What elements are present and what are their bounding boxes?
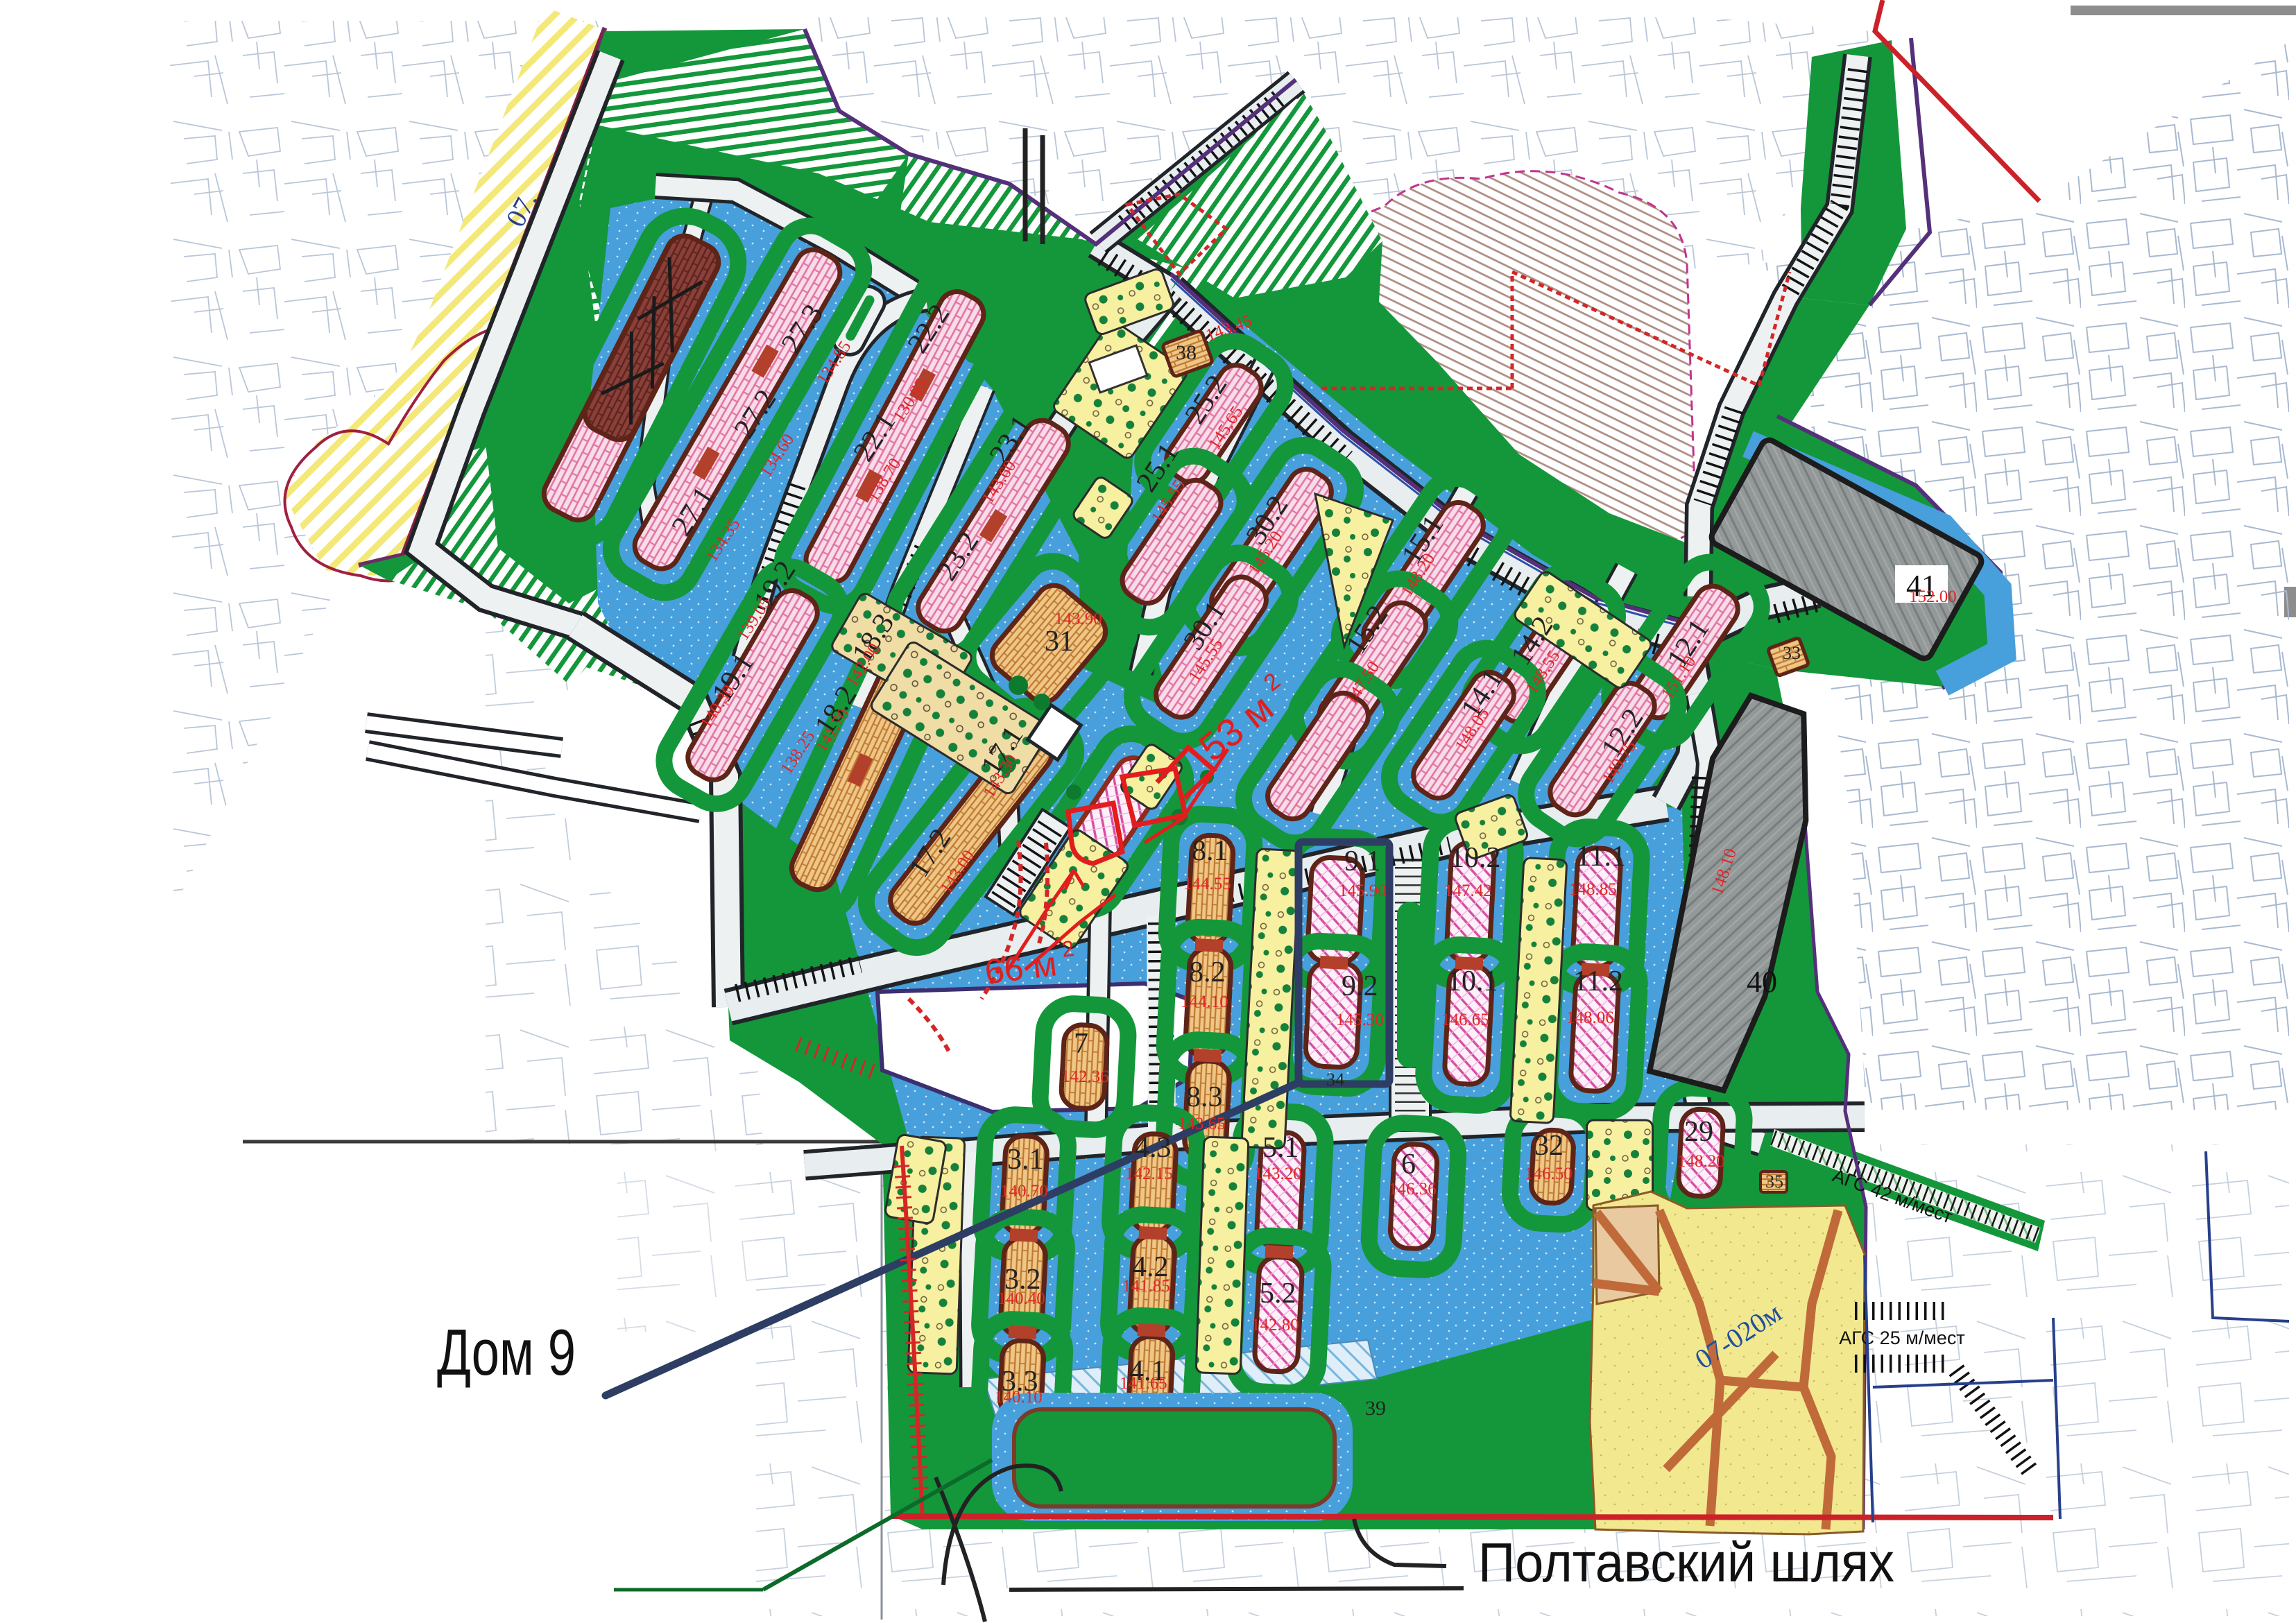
svg-text:147.42: 147.42 (1444, 882, 1492, 900)
svg-text:8.1: 8.1 (1192, 835, 1228, 867)
svg-text:38: 38 (1176, 341, 1197, 364)
svg-text:Полтавский шлях: Полтавский шлях (1478, 1531, 1894, 1593)
svg-text:8.3: 8.3 (1186, 1081, 1223, 1113)
svg-text:144.10: 144.10 (1181, 993, 1228, 1011)
svg-text:142.36: 142.36 (1061, 1067, 1109, 1086)
svg-text:29: 29 (1684, 1116, 1713, 1148)
svg-text:143.90: 143.90 (1054, 610, 1102, 628)
svg-text:11.2: 11.2 (1573, 965, 1623, 997)
svg-text:148.06: 148.06 (1566, 1008, 1614, 1027)
svg-text:АГС 25 м/мест: АГС 25 м/мест (1839, 1328, 1964, 1348)
svg-text:5.2: 5.2 (1260, 1278, 1296, 1309)
svg-text:145.90: 145.90 (1339, 882, 1387, 900)
svg-text:9.2: 9.2 (1342, 970, 1378, 1002)
svg-text:32: 32 (1534, 1130, 1563, 1162)
svg-text:5.1: 5.1 (1262, 1132, 1299, 1164)
svg-text:3.1: 3.1 (1007, 1144, 1044, 1176)
svg-text:Дом 9: Дом 9 (437, 1316, 576, 1389)
svg-text:40: 40 (1747, 965, 1777, 999)
svg-text:143.65: 143.65 (1178, 1115, 1226, 1133)
svg-text:7: 7 (1074, 1028, 1088, 1060)
svg-text:4.3: 4.3 (1135, 1132, 1172, 1164)
svg-text:39: 39 (1365, 1397, 1386, 1420)
svg-text:6: 6 (1401, 1149, 1416, 1180)
svg-text:10.1: 10.1 (1447, 965, 1498, 997)
svg-text:31: 31 (1045, 626, 1074, 658)
svg-text:148.85: 148.85 (1569, 880, 1617, 899)
svg-text:11.1: 11.1 (1576, 841, 1626, 873)
svg-text:146.36: 146.36 (1389, 1180, 1437, 1199)
svg-text:152.00: 152.00 (1909, 587, 1957, 606)
svg-text:140.10: 140.10 (995, 1388, 1043, 1407)
svg-text:145.30: 145.30 (1336, 1011, 1384, 1029)
svg-text:33: 33 (1783, 643, 1801, 663)
svg-text:144.55: 144.55 (1183, 875, 1231, 893)
svg-text:141.85: 141.85 (1122, 1277, 1170, 1296)
svg-text:140.40: 140.40 (997, 1289, 1045, 1308)
svg-text:8.2: 8.2 (1189, 956, 1226, 988)
svg-text:143.20: 143.20 (1254, 1165, 1302, 1183)
svg-text:148.20: 148.20 (1677, 1152, 1725, 1171)
svg-text:9.1: 9.1 (1344, 845, 1381, 877)
svg-text:10.2: 10.2 (1450, 842, 1501, 874)
svg-text:142.80: 142.80 (1251, 1316, 1299, 1334)
svg-text:146.65: 146.65 (1441, 1011, 1489, 1029)
svg-text:142.15: 142.15 (1125, 1165, 1173, 1183)
svg-text:146.50: 146.50 (1525, 1165, 1573, 1183)
svg-text:140.70: 140.70 (1000, 1182, 1048, 1201)
svg-text:141.65: 141.65 (1120, 1374, 1167, 1393)
svg-text:34: 34 (1326, 1070, 1344, 1090)
svg-text:35: 35 (1765, 1171, 1783, 1192)
